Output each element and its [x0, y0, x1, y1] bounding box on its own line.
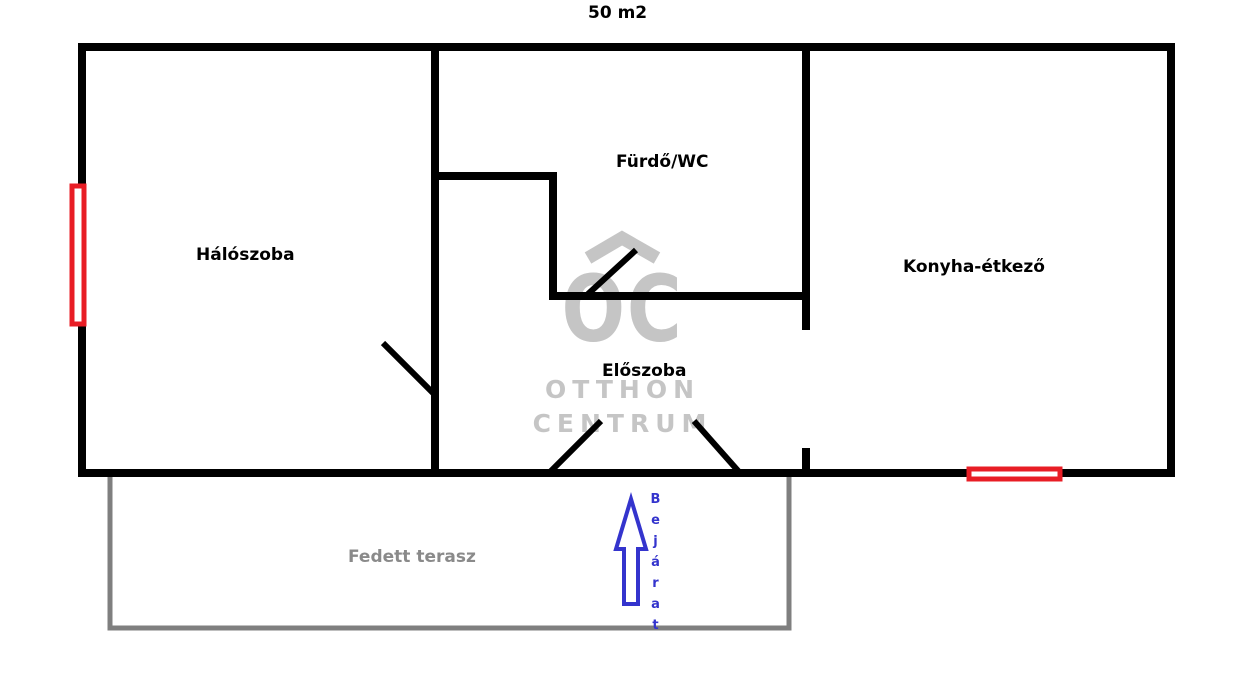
bedroom-door-swing [383, 343, 433, 393]
entrance-arrow-icon [616, 499, 646, 604]
floor-plan: OC OTTHON CENTRUM 50 m2 Hálószoba Fürdő/… [0, 0, 1250, 687]
plan-drawing [0, 0, 1250, 687]
bathroom-label: Fürdő/WC [616, 152, 709, 172]
hallway-label: Előszoba [602, 361, 686, 381]
bedroom-label: Hálószoba [196, 245, 295, 265]
kitchen-label: Konyha-étkező [903, 257, 1045, 277]
entrance-door-swing-left [549, 421, 601, 473]
bathroom-door-swing [588, 250, 636, 294]
terrace-label: Fedett terasz [348, 547, 476, 567]
bedroom-window [72, 186, 84, 324]
entrance-label: Bejárat [648, 492, 663, 627]
plan-title: 50 m2 [588, 3, 647, 23]
kitchen-window [969, 469, 1060, 479]
bathroom-walls [431, 176, 810, 296]
entrance-door-swing-right [694, 421, 740, 473]
